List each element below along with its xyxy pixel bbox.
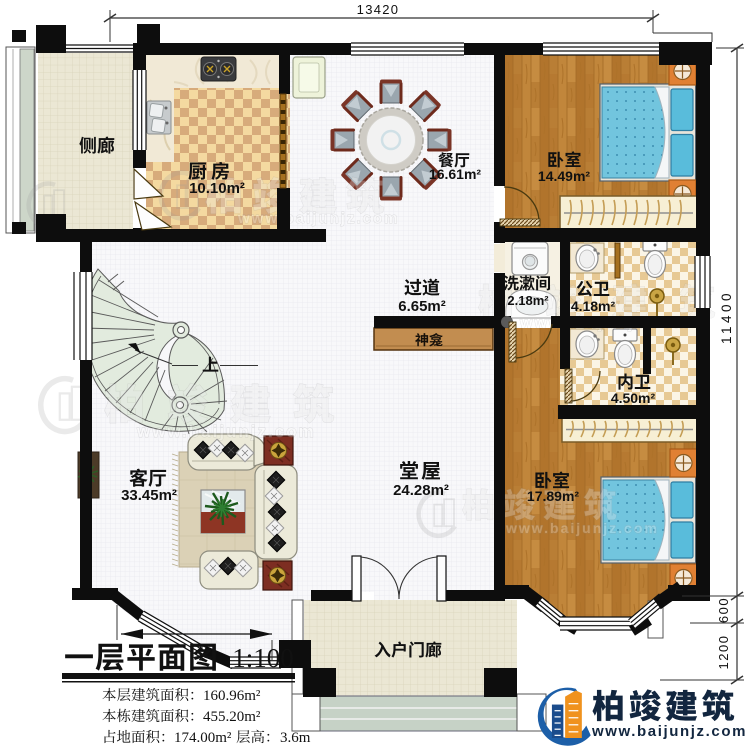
svg-text:4.18m²: 4.18m² xyxy=(571,298,616,314)
svg-text:14.49m²: 14.49m² xyxy=(538,168,590,184)
svg-text:16.61m²: 16.61m² xyxy=(429,166,481,182)
svg-text:1:100: 1:100 xyxy=(232,643,294,673)
svg-text:33.45m²: 33.45m² xyxy=(121,487,177,504)
svg-text:24.28m²: 24.28m² xyxy=(393,482,449,499)
svg-text:13420: 13420 xyxy=(357,2,400,17)
svg-text:1200: 1200 xyxy=(716,635,731,670)
svg-text:600: 600 xyxy=(716,597,731,623)
svg-text:6.65m²: 6.65m² xyxy=(398,298,446,315)
svg-text:www.baijunjz.com: www.baijunjz.com xyxy=(505,520,659,536)
svg-text:10.10m²: 10.10m² xyxy=(189,180,245,197)
svg-text:www.baijunjz.com: www.baijunjz.com xyxy=(136,422,316,441)
svg-text:174.00m²: 174.00m² xyxy=(174,730,232,746)
svg-text:3.6m: 3.6m xyxy=(280,730,311,746)
svg-text:www.baijunjz.com: www.baijunjz.com xyxy=(237,210,399,227)
svg-text:455.20m²: 455.20m² xyxy=(203,709,261,725)
svg-text:2.18m²: 2.18m² xyxy=(507,293,549,308)
svg-text:www.baijunjz.com: www.baijunjz.com xyxy=(591,723,747,740)
svg-text:17.89m²: 17.89m² xyxy=(527,488,579,504)
svg-text:4.50m²: 4.50m² xyxy=(611,390,656,406)
svg-text:160.96m²: 160.96m² xyxy=(203,688,261,704)
svg-text:11400: 11400 xyxy=(719,290,734,344)
